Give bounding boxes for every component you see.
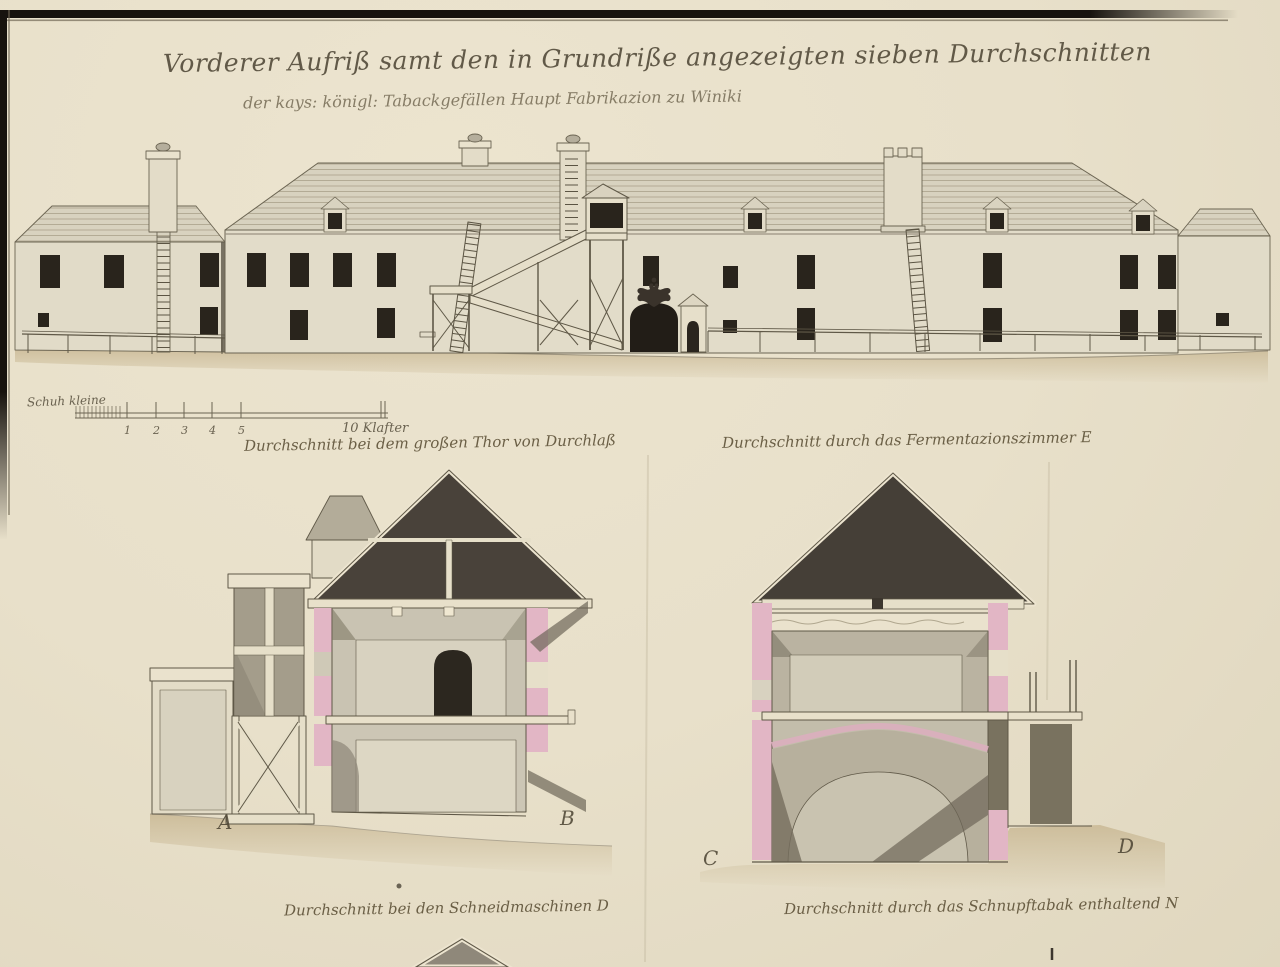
drawing-sheet: Vorderer Aufriß samt den in Grundriße an… [0, 0, 1280, 967]
scale-bar-unit-label: Schuh kleine [27, 393, 106, 410]
frame-border-left-inner-line [8, 10, 10, 515]
scale-tick-2: 2 [153, 424, 160, 437]
section-letter-d: D [1118, 834, 1134, 858]
frame-border-left [0, 10, 7, 540]
section-arched-door [434, 650, 472, 716]
sentry-box [678, 294, 708, 352]
section-annex [1008, 660, 1092, 828]
left-shed [150, 668, 235, 814]
chimney-top [459, 134, 491, 166]
section-letter-c: C [703, 846, 718, 870]
frame-border-top [0, 10, 1238, 18]
scale-tick-4: 4 [209, 424, 216, 437]
scale-tick-5: 5 [238, 424, 245, 437]
scale-tick-1: 1 [124, 424, 131, 437]
section-fermentation [700, 473, 1165, 890]
section-letter-a: A [218, 810, 232, 834]
frame-border-top-inner-line [0, 20, 1228, 22]
main-elevation [15, 134, 1270, 384]
section-stair-tower [226, 574, 314, 824]
partial-section-gable [416, 939, 1052, 967]
chimney-crenellated [881, 148, 925, 232]
chimney-with-rungs [557, 135, 589, 240]
section-fermentation-building [752, 473, 1092, 862]
right-wing [1178, 209, 1270, 350]
main-gate-arch [630, 303, 678, 352]
drawing-canvas [0, 0, 1280, 967]
ink-dot [397, 884, 402, 889]
scale-bar [75, 401, 388, 418]
section-letter-b: B [560, 806, 575, 830]
scale-tick-3: 3 [181, 424, 188, 437]
